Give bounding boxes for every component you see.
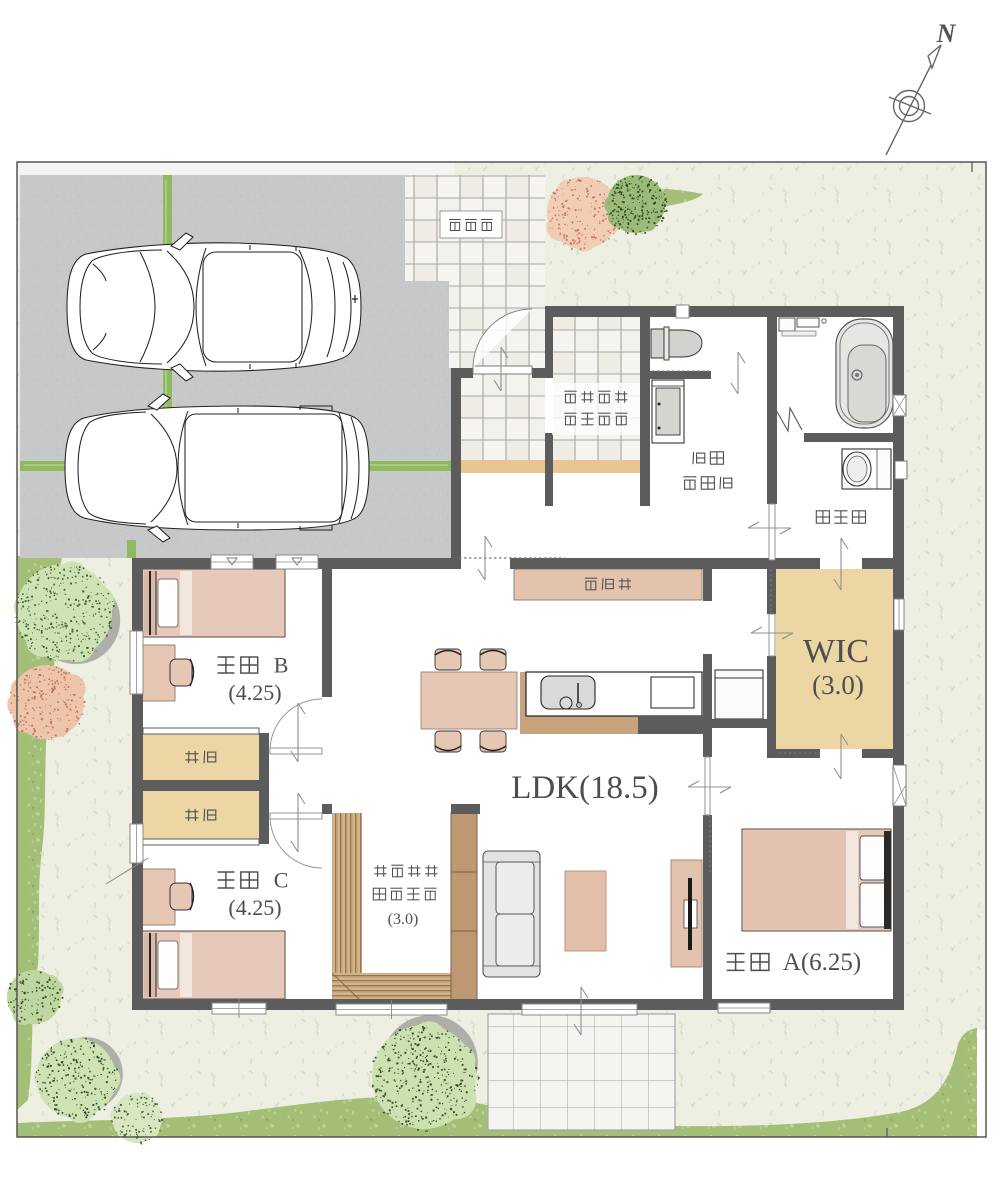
svg-text:C: C xyxy=(274,867,289,892)
svg-text:LDK(18.5): LDK(18.5) xyxy=(511,770,659,806)
svg-text:N: N xyxy=(936,19,957,48)
svg-text:(3.0): (3.0) xyxy=(812,670,864,700)
svg-text:A(6.25): A(6.25) xyxy=(783,949,861,976)
svg-text:WIC: WIC xyxy=(803,633,869,670)
svg-text:(4.25): (4.25) xyxy=(228,680,281,705)
svg-text:(3.0): (3.0) xyxy=(388,911,419,928)
svg-text:(4.25): (4.25) xyxy=(228,895,281,920)
svg-text:B: B xyxy=(274,652,289,677)
